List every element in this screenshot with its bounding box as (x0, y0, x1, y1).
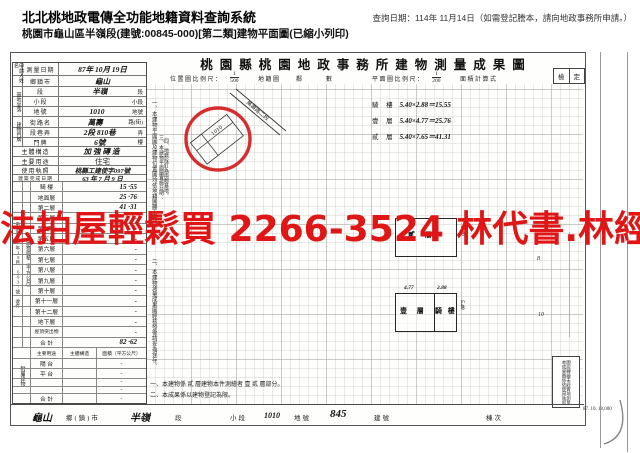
check-box: 檢 定 (553, 68, 585, 84)
table-row: 段 半嶺段 (13, 87, 146, 97)
row-value: 桃縣工建使字097號 (62, 166, 143, 174)
first-floor-width-dim: 4.77 (404, 285, 414, 291)
row-value: 6號 (62, 138, 137, 146)
row-value: 87年 10月 19日 (62, 64, 143, 75)
annex-row-area: - (97, 379, 146, 386)
area-row-value: - (63, 265, 146, 274)
plan-scale-label: 平面圖比例尺： (372, 74, 425, 83)
location-scale-fraction: 1 500 (230, 71, 239, 84)
area-row-label: 第八層 (31, 265, 63, 274)
count-label: 數 (326, 74, 334, 83)
annex-row-use: 合 計 (31, 394, 63, 403)
row-value: 半嶺 (62, 87, 137, 96)
form-title: 桃園縣桃園地政事務所建物測量成果圖 (150, 54, 582, 73)
calc-line: 壹 層5.40×4.77＝25.76 (372, 112, 451, 128)
annex-row-use (31, 379, 63, 386)
area-row-value: - (63, 307, 146, 316)
note-line: 一、本建物係 貳 層建物本件測繪者 壹 貳 層部分。 (150, 380, 350, 391)
annex-row-area: - (97, 394, 146, 403)
location-diagram: 1010 萬壽路二段 (150, 85, 350, 205)
row-suffix: 弄 (137, 129, 143, 137)
check-cell: 檢 (554, 69, 570, 83)
row-label: 段巷弄 (23, 128, 59, 137)
area-row-label: 第十一層 (31, 296, 63, 305)
annex-row-area: - (97, 369, 146, 378)
row-label: 門牌 (23, 138, 59, 146)
scan-curl-mark (596, 398, 632, 446)
location-scale-denominator: 500 (230, 78, 238, 84)
building-number-label: 建號 (374, 412, 391, 422)
area-row: 第十二層- (13, 307, 146, 317)
row-value: 萬壽 (62, 117, 128, 127)
area-row-label: 第七層 (31, 255, 63, 264)
town-value: 龜山 (32, 409, 52, 424)
stamp-text: 圖說轉繪未經實地測量 (566, 357, 571, 407)
row-value: 1010 (62, 107, 132, 116)
parcel-label: 地號 (294, 412, 311, 422)
annex-row-struct (63, 387, 97, 394)
annex-row: 平 台- (13, 369, 146, 379)
parcel-number: 1010 (210, 125, 224, 138)
row-suffix: 小段 (132, 98, 143, 106)
calc-formula: 5.40×4.77＝25.76 (400, 117, 451, 125)
location-scale-label: 位置圖比例尺： (170, 74, 223, 83)
annex-header-struct: 主體構造 (63, 348, 97, 358)
annex-row: - (13, 387, 146, 395)
table-row: 門牌 6號樓 (13, 138, 146, 147)
annex-table: 主要用途 主體構造 面積（平方公尺） 陽 台- 平 台- - - 合 計- (13, 348, 146, 403)
row-suffix: 路(街) (128, 118, 143, 126)
calc-label: 騎 樓 (372, 102, 396, 109)
area-row: 第十層- (13, 286, 146, 296)
area-row: 第十一層- (13, 296, 146, 306)
area-row-value: - (63, 296, 146, 305)
row-suffix: 段 (137, 88, 143, 96)
table-row: 地號 1010地號 (13, 107, 146, 117)
calc-formula: 5.40×2.88＝15.55 (400, 101, 451, 109)
area-row: 騎 樓15 ·55 (13, 182, 146, 192)
annex-row: 合 計- (13, 394, 146, 403)
annex-row-area: - (97, 387, 146, 394)
area-row-value: - (63, 317, 146, 326)
first-floor-label: 壹 層 (400, 306, 428, 316)
unit-label: 棟次 (486, 412, 503, 422)
area-row-value: 15 ·55 (63, 182, 146, 191)
site-block-label: 基地坐落 (13, 87, 23, 117)
row-label: 段 (23, 87, 59, 96)
row-value: 龜山 (62, 76, 143, 86)
annex-row-area: - (97, 359, 146, 368)
advertisement-overlay-text: 法拍屋輕鬆買 2266-3524 林代書.林經理 (0, 200, 640, 252)
row-label: 使用執照 (13, 166, 59, 174)
cadastre-label: 地籍圖 (258, 74, 281, 83)
area-row: 第八層- (13, 265, 146, 275)
applicant-block-label: 申請人姓名 (13, 63, 23, 87)
door-block-label: 建物門牌 (13, 117, 23, 147)
bottom-notes: 一、本建物係 貳 層建物本件測繪者 壹 貳 層部分。 二、本成果係以建物登記為限… (150, 380, 350, 402)
area-calc-label: 面積計算式 (460, 74, 498, 83)
arcade-label: 騎 樓 (435, 306, 457, 316)
area-row-label: 第九層 (31, 275, 63, 284)
area-row: 第九層- (13, 275, 146, 285)
building-number-value: 845 (330, 408, 347, 420)
lin-label: 鄰 (296, 74, 304, 83)
area-row: 合 計82 ·62 (13, 338, 146, 348)
row-label: 測量日期 (23, 63, 59, 75)
calc-label: 壹 層 (372, 118, 396, 125)
bottom-location-bar: 龜山 鄉(鎮)市 半嶺 段 小段 1010 地號 845 建號 棟次 (10, 404, 584, 425)
annex-row: 陽 台- (13, 359, 146, 369)
table-row: 段巷弄 2段 810巷弄 (13, 128, 146, 138)
area-row-label: 屋頂突出物 (31, 327, 63, 336)
annex-row: - (13, 379, 146, 387)
query-date: 查詢日期：114年 11月14日（如需登記謄本，請向地政事務所申請。） (373, 12, 632, 24)
parcel-outline (190, 114, 243, 164)
section-value: 半嶺 (130, 409, 150, 424)
check-cell: 定 (570, 69, 585, 83)
area-calculations: 騎 樓5.40×2.88＝15.55 壹 層5.40×4.77＝25.76 貳 … (372, 96, 451, 144)
grid-reference: 8 (537, 256, 540, 262)
row-label: 街路名 (23, 117, 59, 127)
table-row: 建築完成日期 63 年 7 月 9 日 (13, 175, 146, 182)
annex-header-area: 面積（平方公尺） (97, 348, 146, 358)
annex-header-use: 主要用途 (31, 348, 63, 358)
table-row: 小段 小段 (13, 97, 146, 107)
annex-row-struct (63, 359, 97, 368)
area-row-value: - (63, 255, 146, 264)
annex-header: 主要用途 主體構造 面積（平方公尺） (13, 348, 146, 359)
table-row: 主要用途 住宅 (13, 157, 146, 166)
note-line: 二、本成果係以建物登記為限。 (150, 391, 350, 402)
row-label: 建築完成日期 (13, 175, 59, 181)
table-row: 鄉鎮市 龜山 (13, 76, 146, 87)
row-label: 鄉鎮市 (23, 76, 59, 86)
plan-scale-denominator: 200 (432, 78, 440, 84)
row-value: 2段 810巷 (62, 128, 137, 137)
area-row-label: 第十層 (31, 286, 63, 295)
area-row: 第七層- (13, 255, 146, 265)
calc-line: 騎 樓5.40×2.88＝15.55 (372, 96, 451, 112)
annex-row-use: 陽 台 (31, 359, 63, 368)
area-row-value: - (63, 327, 146, 336)
area-row: 地下層- (13, 317, 146, 327)
table-row: 測量日期 87年 10月 19日 (13, 63, 146, 76)
grid-reference: 10 (538, 312, 544, 318)
area-row-value: 82 ·62 (63, 338, 146, 347)
row-value: 住宅 (62, 157, 143, 165)
document-title-line: 桃園市龜山區半嶺段(建號:00845-000)[第二類]建物平面圖(已縮小列印) (22, 26, 349, 41)
annex-row-use (31, 387, 63, 394)
subsection-label: 小段 (230, 412, 247, 422)
calc-formula: 5.40×7.65＝41.31 (400, 133, 451, 141)
town-label: 鄉(鎮)市 (66, 412, 100, 422)
system-title: 北北桃地政電傳全功能地籍資料查詢系統 (22, 7, 256, 26)
row-value: 63 年 7 月 9 日 (62, 175, 143, 181)
table-row: 使用執照 桃縣工建使字097號 (13, 166, 146, 175)
table-row: 街路名 萬壽路(街) (13, 117, 146, 128)
calc-line: 貳 層5.40×7.65＝41.31 (372, 128, 451, 144)
section-label: 段 (175, 412, 184, 422)
location-scale-numerator: 1 (230, 71, 239, 78)
annex-row-use: 平 台 (31, 369, 63, 378)
side-note: 二、本建物測量成果圖經核發後請妥為保存。 (147, 248, 159, 378)
area-row: 屋頂突出物- (13, 327, 146, 337)
table-row: 主體構造 加強磚造 (13, 147, 146, 157)
plan-scale-fraction: 1 200 (432, 71, 441, 84)
annex-row-struct (63, 394, 97, 403)
parcel-value: 1010 (264, 411, 280, 420)
calc-label: 貳 層 (372, 134, 396, 141)
first-floor-depth-dim: 5.40 (459, 300, 465, 310)
plan-scale-numerator: 1 (432, 71, 441, 78)
row-label: 地號 (23, 107, 59, 116)
row-suffix: 地號 (132, 108, 143, 116)
area-row-label: 合 計 (31, 338, 63, 347)
area-row-label: 第十二層 (31, 307, 63, 316)
area-row-value: - (63, 275, 146, 284)
stamp-box: 本成果圖係依使用執照 圖說轉繪未經實地測量 (552, 356, 580, 408)
row-label: 小段 (23, 97, 59, 106)
row-suffix: 樓 (137, 138, 143, 146)
scan-edge-line (627, 52, 628, 452)
row-label: 主體構造 (13, 147, 59, 156)
annex-row-struct (63, 379, 97, 386)
arcade-width-dim: 2.88 (437, 285, 447, 291)
area-row-value: - (63, 286, 146, 295)
row-value: 加強磚造 (62, 147, 143, 156)
road-label: 萬壽路二段 (245, 98, 272, 122)
annex-row-struct (63, 369, 97, 378)
area-row-label: 地下層 (31, 317, 63, 326)
area-row-label: 騎 樓 (31, 182, 63, 191)
row-label: 主要用途 (13, 157, 59, 165)
